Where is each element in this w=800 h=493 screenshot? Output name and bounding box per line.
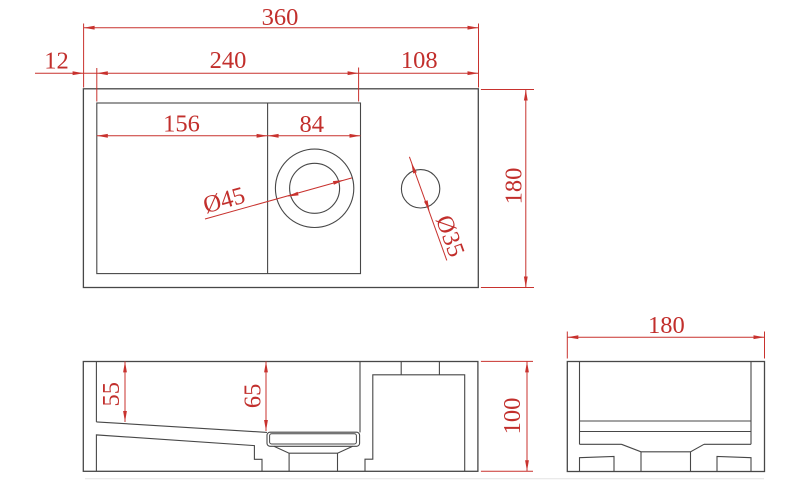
- svg-text:180: 180: [501, 168, 528, 205]
- svg-text:Ø35: Ø35: [430, 212, 470, 261]
- svg-text:Ø45: Ø45: [200, 182, 248, 219]
- svg-text:84: 84: [300, 111, 325, 138]
- svg-text:65: 65: [240, 384, 267, 409]
- svg-text:12: 12: [44, 48, 69, 75]
- svg-text:156: 156: [163, 111, 200, 138]
- svg-text:100: 100: [499, 398, 526, 435]
- svg-text:108: 108: [401, 47, 438, 74]
- svg-text:55: 55: [98, 382, 125, 407]
- svg-text:240: 240: [210, 47, 247, 74]
- svg-text:180: 180: [648, 312, 685, 339]
- svg-text:360: 360: [262, 4, 299, 31]
